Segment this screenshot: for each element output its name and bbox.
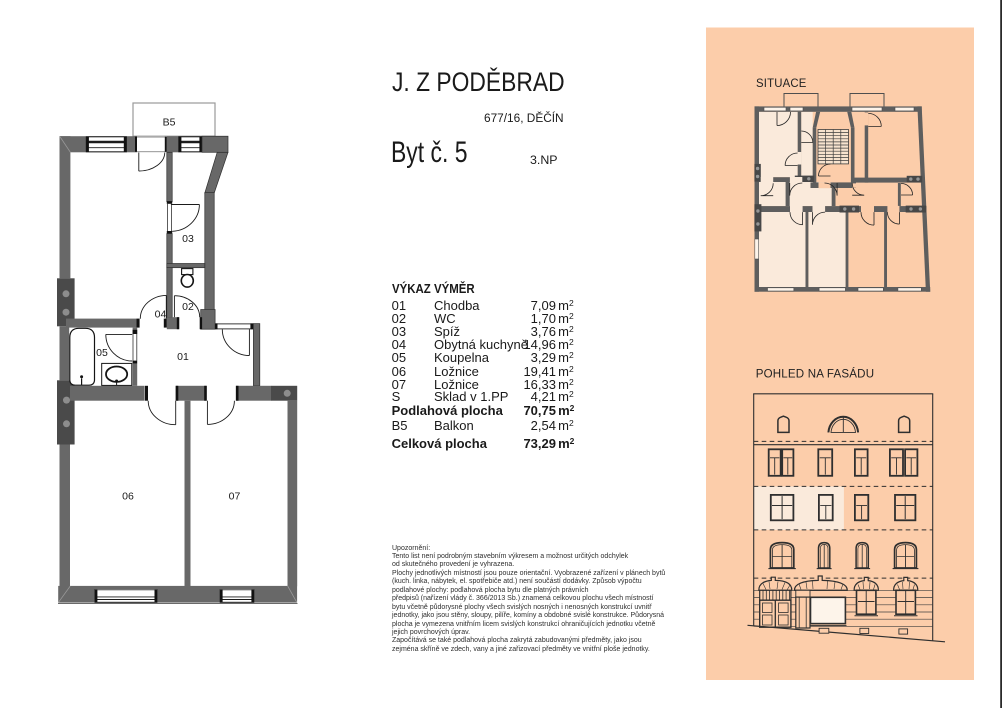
svg-text:07: 07 xyxy=(229,491,241,503)
svg-text:POHLED NA FASÁDU: POHLED NA FASÁDU xyxy=(756,365,875,380)
svg-text:05: 05 xyxy=(96,347,108,359)
svg-text:SITUACE: SITUACE xyxy=(756,75,807,90)
svg-text:01: 01 xyxy=(177,351,189,363)
svg-text:02: 02 xyxy=(182,301,194,313)
svg-text:03: 03 xyxy=(182,233,194,245)
svg-text:06: 06 xyxy=(122,491,134,503)
svg-text:B5: B5 xyxy=(163,117,176,129)
svg-text:04: 04 xyxy=(155,309,167,321)
